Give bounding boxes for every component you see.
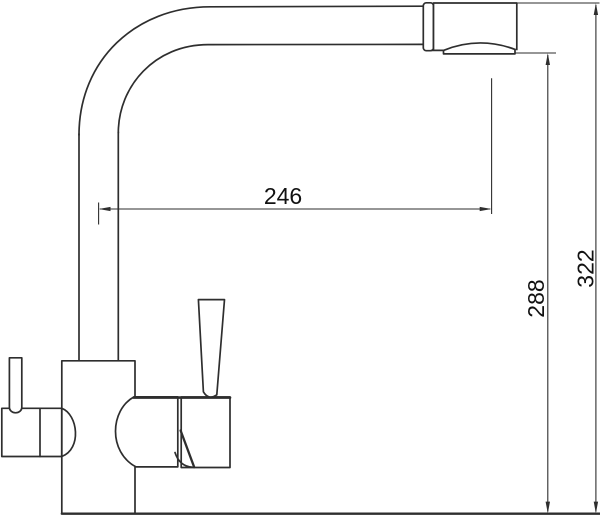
faucet-technical-drawing: 246 288 322 <box>0 0 600 519</box>
filter-valve-housing <box>2 408 62 456</box>
handle-base-block <box>181 397 230 468</box>
dim-322-label: 322 <box>573 249 599 287</box>
dim-246-arrow-right <box>480 207 492 211</box>
dimension-246: 246 <box>99 78 492 224</box>
head-connector-nut <box>423 3 433 51</box>
drawing-canvas: 246 288 322 <box>0 0 600 519</box>
dim-246-label: 246 <box>264 183 302 209</box>
dim-322-arrow-top <box>594 3 598 15</box>
dim-288-arrow-bottom <box>546 502 550 514</box>
dimension-288: 288 <box>516 53 557 513</box>
main-handle-lever <box>198 300 224 397</box>
filter-handle-lever <box>9 358 21 413</box>
dimension-322: 322 <box>517 3 600 513</box>
spout-outer-curve <box>79 6 424 135</box>
dim-288-label: 288 <box>523 279 549 317</box>
spout <box>79 6 424 360</box>
spout-inner-curve <box>118 44 424 133</box>
dim-288-arrow-top <box>546 53 550 65</box>
spout-head <box>423 3 517 54</box>
dim-322-arrow-bottom <box>594 502 598 514</box>
dim-246-arrow-left <box>99 207 111 211</box>
cartridge-barrel <box>116 397 178 467</box>
